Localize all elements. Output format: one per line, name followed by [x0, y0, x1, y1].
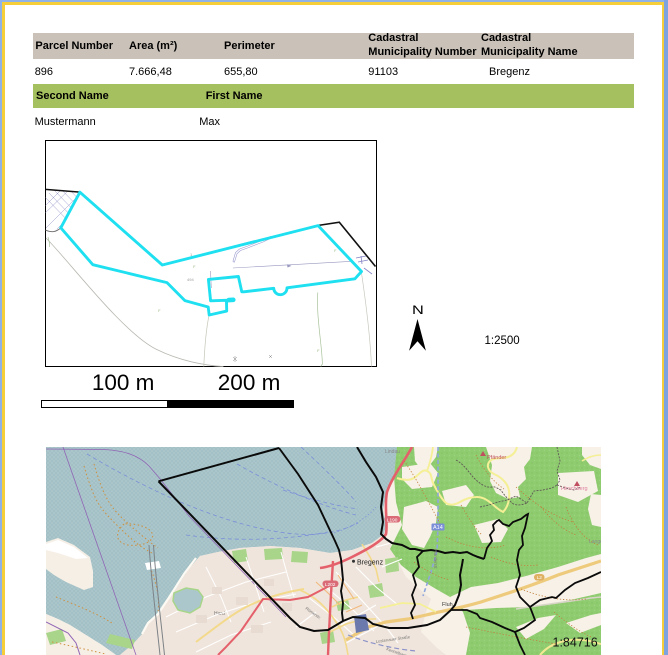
- svg-text:Hirschberg: Hirschberg: [561, 486, 588, 492]
- svg-text:Pfänder: Pfänder: [487, 455, 506, 461]
- svg-text:Fluh: Fluh: [442, 602, 453, 608]
- svg-text:A14: A14: [433, 525, 443, 531]
- svg-text:1:84716: 1:84716: [553, 636, 598, 650]
- svg-text:L202: L202: [325, 582, 336, 588]
- svg-text:Bregenz: Bregenz: [357, 560, 384, 567]
- svg-text:Lindau: Lindau: [385, 449, 400, 455]
- svg-text:L190: L190: [387, 517, 398, 523]
- svg-text:Pfänderstr.: Pfänderstr.: [433, 549, 438, 569]
- svg-text:Langen: Langen: [589, 539, 601, 545]
- svg-text:494: 494: [187, 277, 194, 282]
- svg-text:L2: L2: [537, 575, 543, 581]
